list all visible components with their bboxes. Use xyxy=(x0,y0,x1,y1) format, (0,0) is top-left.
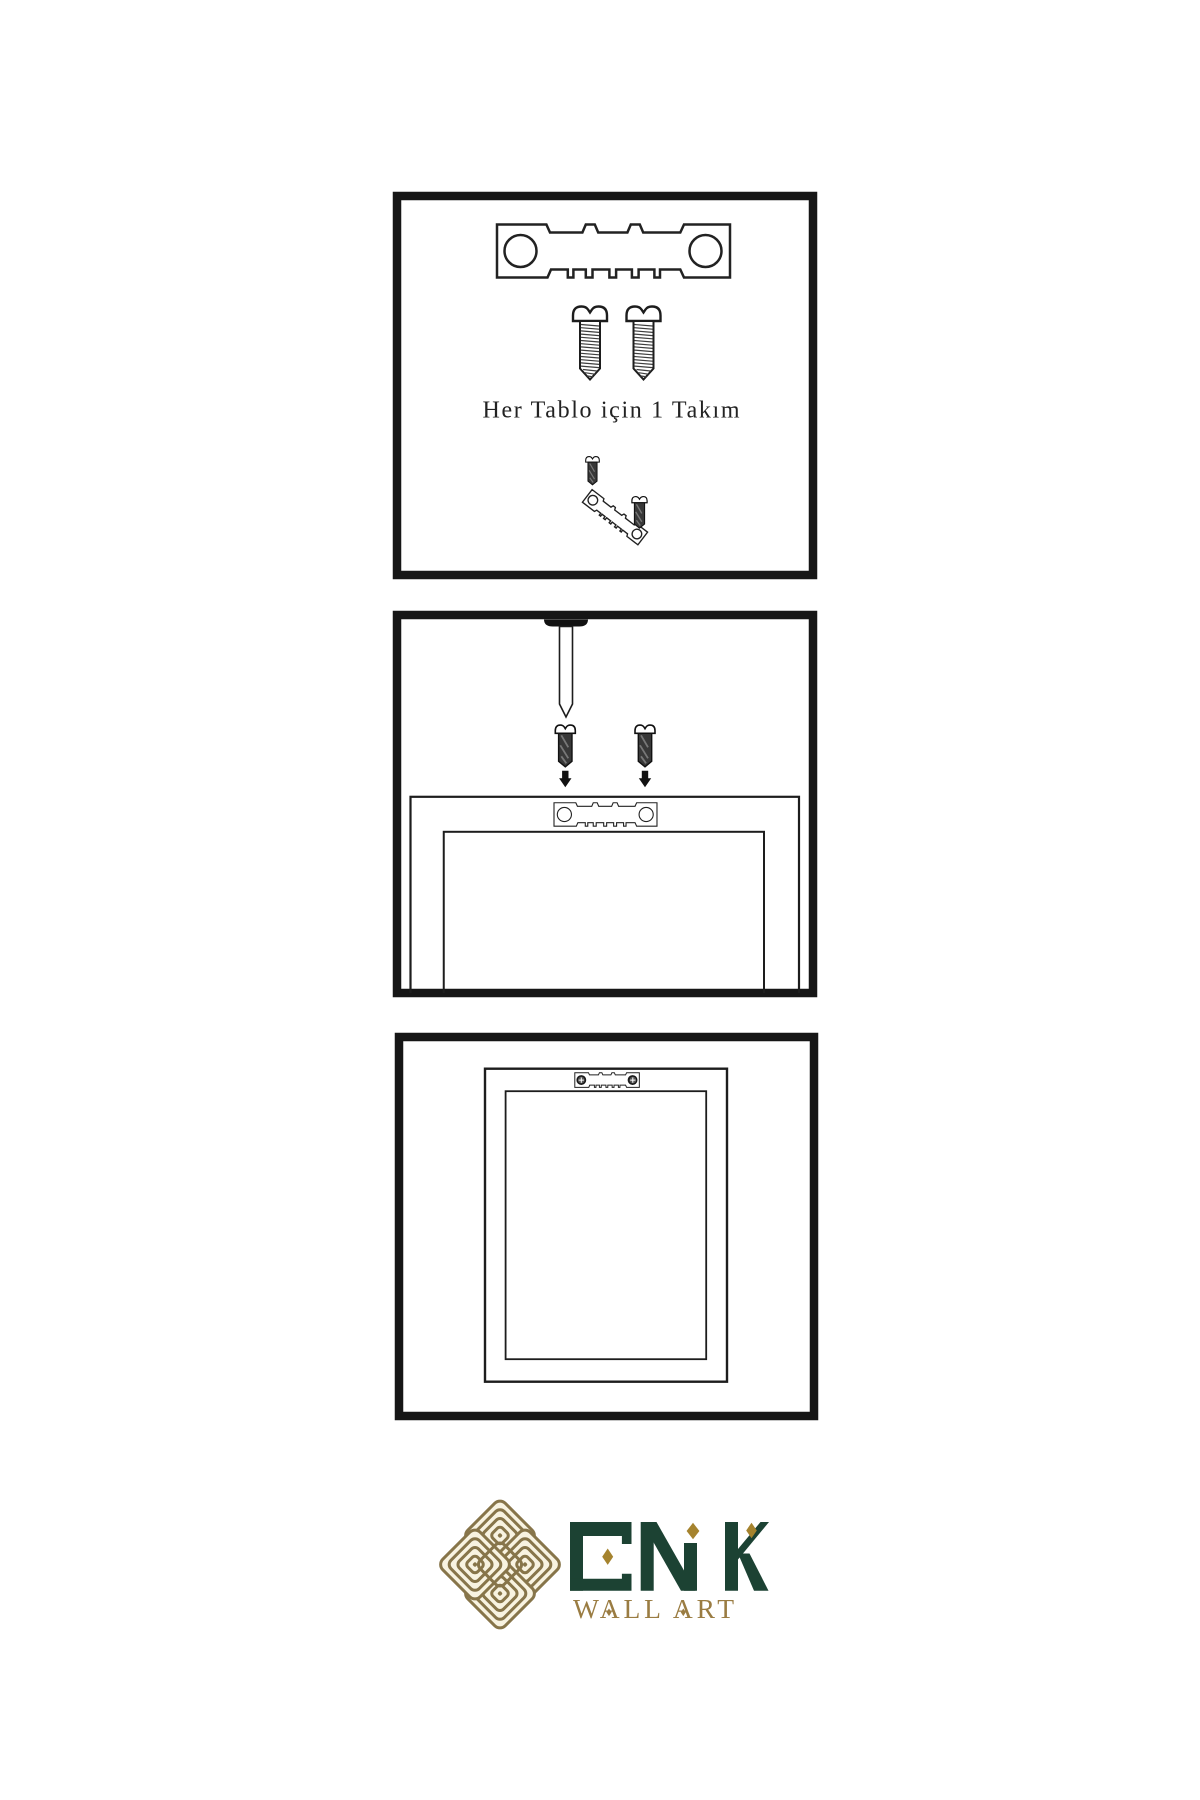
svg-text:Her Tablo için 1 Takım: Her Tablo için 1 Takım xyxy=(483,398,740,424)
svg-text:WALL ART: WALL ART xyxy=(573,1593,737,1624)
